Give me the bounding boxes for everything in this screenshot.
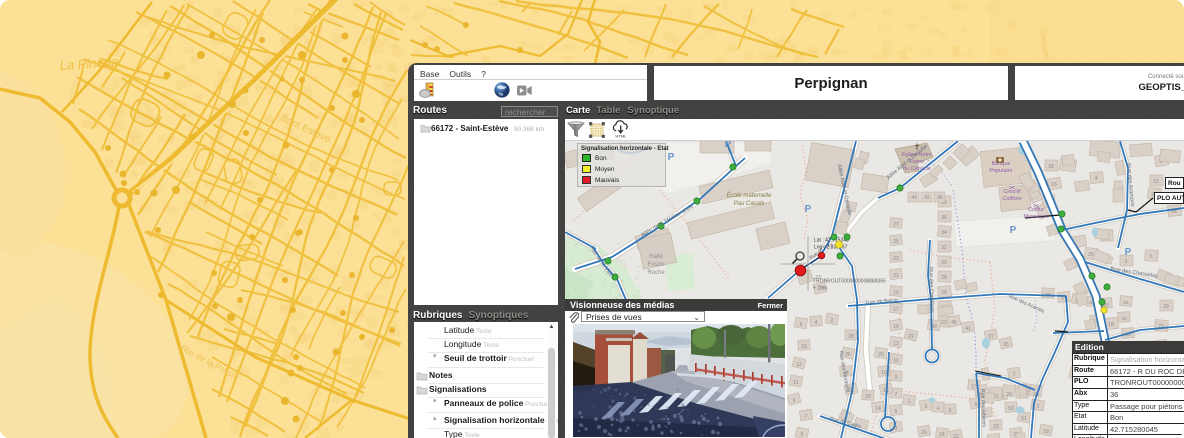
- svg-text:36: 36: [941, 215, 947, 221]
- svg-text:34: 34: [941, 230, 947, 236]
- svg-text:27: 27: [893, 222, 899, 228]
- svg-text:P: P: [725, 141, 732, 150]
- svg-text:Coiffur: Coiffur: [1028, 207, 1044, 213]
- svg-text:P: P: [1010, 225, 1017, 236]
- svg-text:16: 16: [1051, 182, 1057, 188]
- svg-text:22: 22: [908, 334, 914, 340]
- svg-text:Populaire: Populaire: [989, 168, 1012, 174]
- svg-text:Coiffure: Coiffure: [1002, 196, 1021, 202]
- svg-text:7: 7: [895, 392, 898, 398]
- svg-text:4: 4: [1095, 176, 1098, 182]
- svg-text:22: 22: [941, 320, 947, 326]
- svg-text:+ 28m: + 28m: [813, 286, 827, 292]
- svg-text:18: 18: [881, 370, 887, 376]
- svg-text:11: 11: [893, 358, 898, 364]
- svg-text:37: 37: [988, 334, 994, 340]
- svg-text:Roche: Roche: [647, 270, 665, 276]
- svg-text:32: 32: [1121, 316, 1127, 322]
- svg-text:2: 2: [925, 404, 928, 410]
- svg-text:8: 8: [975, 402, 978, 408]
- svg-text:44: 44: [911, 195, 917, 201]
- svg-text:9: 9: [793, 398, 796, 404]
- svg-text:6: 6: [949, 408, 952, 414]
- svg-text:22: 22: [953, 434, 959, 438]
- svg-text:21: 21: [893, 273, 899, 279]
- svg-text:École maternelle: École maternelle: [727, 192, 772, 199]
- svg-text:51: 51: [1021, 416, 1027, 422]
- svg-text:45: 45: [951, 320, 957, 326]
- svg-text:3: 3: [1125, 259, 1128, 265]
- svg-text:TRONROUT0000000008888365: TRONROUT0000000008888365: [813, 279, 886, 285]
- svg-text:Pau Casals: Pau Casals: [734, 201, 765, 207]
- svg-text:3: 3: [1037, 404, 1040, 410]
- svg-text:15: 15: [893, 324, 899, 330]
- svg-text:20: 20: [878, 352, 884, 358]
- svg-text:29: 29: [1006, 392, 1012, 398]
- svg-text:40: 40: [937, 195, 943, 201]
- svg-text:7: 7: [1013, 372, 1016, 378]
- svg-text:26: 26: [941, 290, 947, 296]
- svg-text:9: 9: [895, 375, 898, 381]
- svg-text:12: 12: [1153, 179, 1159, 185]
- svg-text:4: 4: [937, 406, 940, 412]
- svg-text:28: 28: [848, 334, 854, 340]
- svg-text:5: 5: [895, 409, 898, 415]
- svg-text:du Cénacle: du Cénacle: [903, 166, 931, 172]
- svg-text:30: 30: [941, 260, 947, 266]
- svg-text:20: 20: [865, 394, 871, 400]
- svg-text:53: 53: [1008, 406, 1014, 412]
- svg-text:15: 15: [801, 344, 807, 350]
- svg-text:13: 13: [796, 362, 802, 368]
- svg-text:11: 11: [793, 380, 798, 386]
- svg-text:1: 1: [908, 399, 911, 405]
- svg-text:26: 26: [921, 430, 927, 436]
- svg-text:5: 5: [801, 432, 804, 438]
- svg-text:Frison: Frison: [648, 262, 665, 268]
- svg-text:1: 1: [1150, 254, 1153, 260]
- svg-text:P: P: [668, 152, 675, 163]
- svg-text:P: P: [805, 204, 812, 215]
- svg-text:Banque: Banque: [992, 161, 1011, 167]
- svg-text:13: 13: [893, 341, 899, 347]
- svg-text:19: 19: [893, 290, 899, 296]
- svg-text:18: 18: [1043, 429, 1049, 435]
- svg-text:26: 26: [845, 352, 851, 358]
- svg-text:34: 34: [1123, 300, 1129, 306]
- svg-text:Messieurs: Messieurs: [1023, 214, 1048, 220]
- svg-text:23: 23: [893, 256, 899, 262]
- svg-text:14: 14: [875, 406, 881, 412]
- svg-text:24: 24: [939, 432, 945, 438]
- svg-text:23: 23: [993, 424, 999, 430]
- svg-text:42: 42: [924, 195, 930, 201]
- svg-text:29: 29: [1163, 304, 1169, 310]
- svg-text:7: 7: [805, 414, 808, 420]
- svg-text:18: 18: [1108, 322, 1114, 328]
- svg-text:Créa'tif: Créa'tif: [1003, 189, 1021, 195]
- svg-text:2: 2: [831, 318, 834, 324]
- svg-text:32: 32: [941, 245, 947, 251]
- svg-text:Halle: Halle: [649, 254, 663, 260]
- svg-text:28: 28: [941, 275, 947, 281]
- svg-text:25: 25: [893, 239, 899, 245]
- svg-text:6: 6: [800, 322, 803, 328]
- svg-text:4: 4: [815, 320, 818, 326]
- svg-text:P: P: [1125, 247, 1132, 258]
- svg-text:18: 18: [1048, 164, 1054, 170]
- svg-text:35: 35: [1003, 342, 1009, 348]
- svg-text:HTML: HTML: [616, 134, 628, 139]
- svg-text:17: 17: [893, 307, 899, 313]
- svg-text:41: 41: [965, 326, 971, 332]
